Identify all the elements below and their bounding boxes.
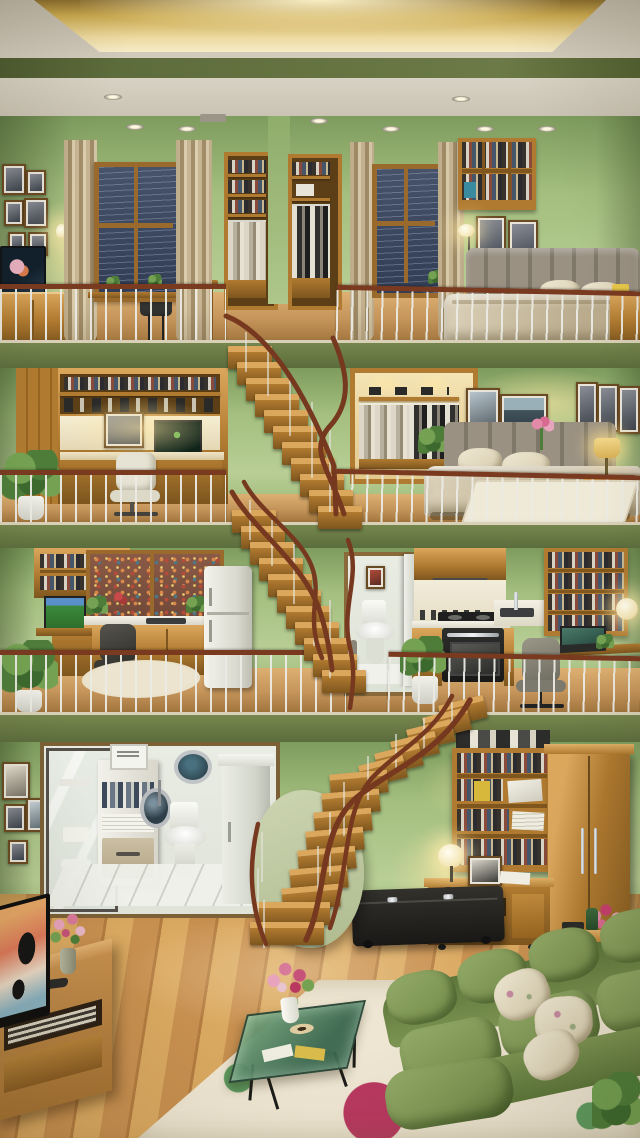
ceiling-zone: [0, 0, 640, 78]
ceiling-cove-glow: [80, 0, 560, 30]
niche-drawer: [228, 280, 266, 298]
book-row: [228, 160, 266, 173]
book-row: [292, 162, 330, 175]
lamp-shade: [594, 438, 620, 458]
stair-step: [250, 922, 324, 945]
recessed-spotlight: [476, 126, 494, 132]
picture-frame: [2, 164, 26, 195]
shelf: [457, 804, 547, 808]
book-row: [228, 180, 266, 193]
desk-top: [36, 628, 92, 636]
latch: [387, 897, 397, 902]
shelf: [548, 569, 624, 572]
paper-pile: [512, 811, 545, 831]
toilet-base: [366, 638, 384, 664]
railing: [387, 652, 640, 721]
shelf: [228, 174, 266, 177]
porthole-window: [174, 750, 212, 784]
book-row: [548, 594, 624, 610]
cabinet-top: [218, 754, 274, 766]
lamp-stem: [605, 458, 608, 476]
book-row: [462, 142, 532, 168]
drawer-handle: [116, 852, 140, 856]
yellow-book: [474, 781, 490, 801]
oven-handle: [447, 633, 499, 637]
table-leg: [266, 1076, 279, 1109]
niche-items: [369, 387, 449, 395]
monitor: [154, 420, 202, 454]
shelf: [292, 198, 330, 201]
shelf-mid: [462, 169, 532, 173]
door-handle: [158, 780, 161, 806]
stair-step: [318, 506, 362, 529]
red-flowers: [112, 590, 128, 606]
recessed-spotlight: [382, 126, 400, 132]
table-lamp: [592, 438, 622, 478]
wardrobe-handle: [594, 828, 597, 874]
corner-plant: [592, 1072, 640, 1136]
upper-cabinet: [414, 548, 506, 580]
books-on-top: [456, 730, 550, 748]
hanging-clothes: [359, 403, 409, 461]
counter-plant: [86, 596, 108, 616]
sign-label: [117, 751, 139, 759]
picture-frame: [8, 840, 28, 864]
picture-frame: [26, 170, 46, 195]
mirrored-towel: [63, 827, 89, 842]
l4-ceiling: [0, 78, 640, 120]
shelf-objects: [64, 377, 216, 390]
hanging-clothes: [292, 204, 330, 278]
ceiling-beam: [0, 58, 640, 78]
book-row: [548, 573, 624, 589]
pink-flowers: [530, 416, 554, 432]
desk-photo: [468, 856, 502, 886]
burner: [476, 615, 490, 620]
ceiling-vent: [200, 114, 226, 122]
picture-frame: [4, 804, 26, 832]
book-row: [228, 200, 266, 213]
recessed-spotlight: [126, 124, 144, 130]
shelf: [548, 590, 624, 593]
laundry-room: [40, 742, 280, 918]
shelf: [548, 611, 624, 614]
ottoman-seam: [357, 898, 497, 905]
desk-papers: [500, 871, 531, 885]
shelf: [457, 774, 547, 778]
fridge-handle: [209, 620, 212, 642]
wardrobe-handle: [581, 828, 584, 874]
ct-vase: [280, 996, 300, 1024]
counter-sink: [146, 618, 186, 624]
niche-drawer: [292, 278, 330, 298]
shelf: [60, 392, 220, 396]
picture-frame: [2, 762, 30, 800]
book-row: [457, 809, 509, 831]
tv: [0, 893, 50, 1029]
mirrored-shelf: [59, 779, 91, 786]
recessed-spotlight: [310, 118, 328, 124]
recessed-spotlight: [452, 96, 470, 102]
recessed-spotlight: [538, 126, 556, 132]
window-mullion: [134, 167, 138, 287]
shelf-objects-dark: [64, 398, 216, 412]
laundry-sign: [110, 744, 148, 770]
recessed-spotlight: [178, 126, 196, 132]
wardrobe-top: [544, 744, 634, 754]
apartment-cross-section: [0, 0, 640, 1138]
monitor-logo: [173, 431, 181, 439]
tv-vase: [60, 948, 76, 974]
tv-flowers: [46, 910, 90, 952]
counter-plant: [186, 596, 206, 614]
burner: [448, 615, 462, 620]
washer-porthole: [140, 788, 172, 828]
fridge-split: [207, 612, 249, 615]
white-box: [507, 779, 542, 803]
hanging-clothes: [228, 220, 266, 280]
desk-plant: [596, 634, 614, 650]
cabinet-handle: [228, 822, 231, 842]
latch: [443, 894, 453, 899]
storage-box: [296, 184, 314, 196]
book-row: [548, 552, 624, 568]
book-row: [457, 753, 547, 773]
level-4: [0, 78, 640, 368]
recessed-spotlight: [104, 94, 122, 100]
railing: [0, 470, 226, 527]
shelf: [228, 214, 266, 217]
wall-lamp: [616, 598, 638, 620]
floor-slab: [0, 340, 640, 371]
coffee-table: [225, 974, 380, 1120]
bathroom-art: [366, 566, 385, 589]
floor-lamp: [458, 224, 475, 237]
railing: [0, 650, 346, 717]
picture-frame: [4, 200, 24, 226]
shelf: [228, 194, 266, 197]
wall-bookshelf: [458, 138, 536, 210]
lamp-arm: [450, 866, 453, 882]
faucet: [514, 592, 518, 610]
picture-frame: [24, 198, 48, 228]
window-mullion: [150, 554, 154, 618]
bookshelf: [544, 548, 628, 636]
green-column: [268, 116, 290, 304]
teal-box: [464, 182, 476, 198]
shelf: [457, 834, 547, 838]
wardrobe-niche: [288, 154, 342, 310]
lamp-globe: [438, 844, 464, 868]
nook-art: [104, 412, 144, 448]
monitor: [44, 596, 86, 630]
shelf: [359, 397, 459, 401]
shelf: [292, 176, 330, 179]
stair-step: [322, 670, 366, 693]
window-mullion: [404, 169, 408, 283]
tv-screen-art: [0, 898, 46, 1018]
fridge-handle: [209, 588, 212, 606]
tv-image: [5, 254, 35, 282]
